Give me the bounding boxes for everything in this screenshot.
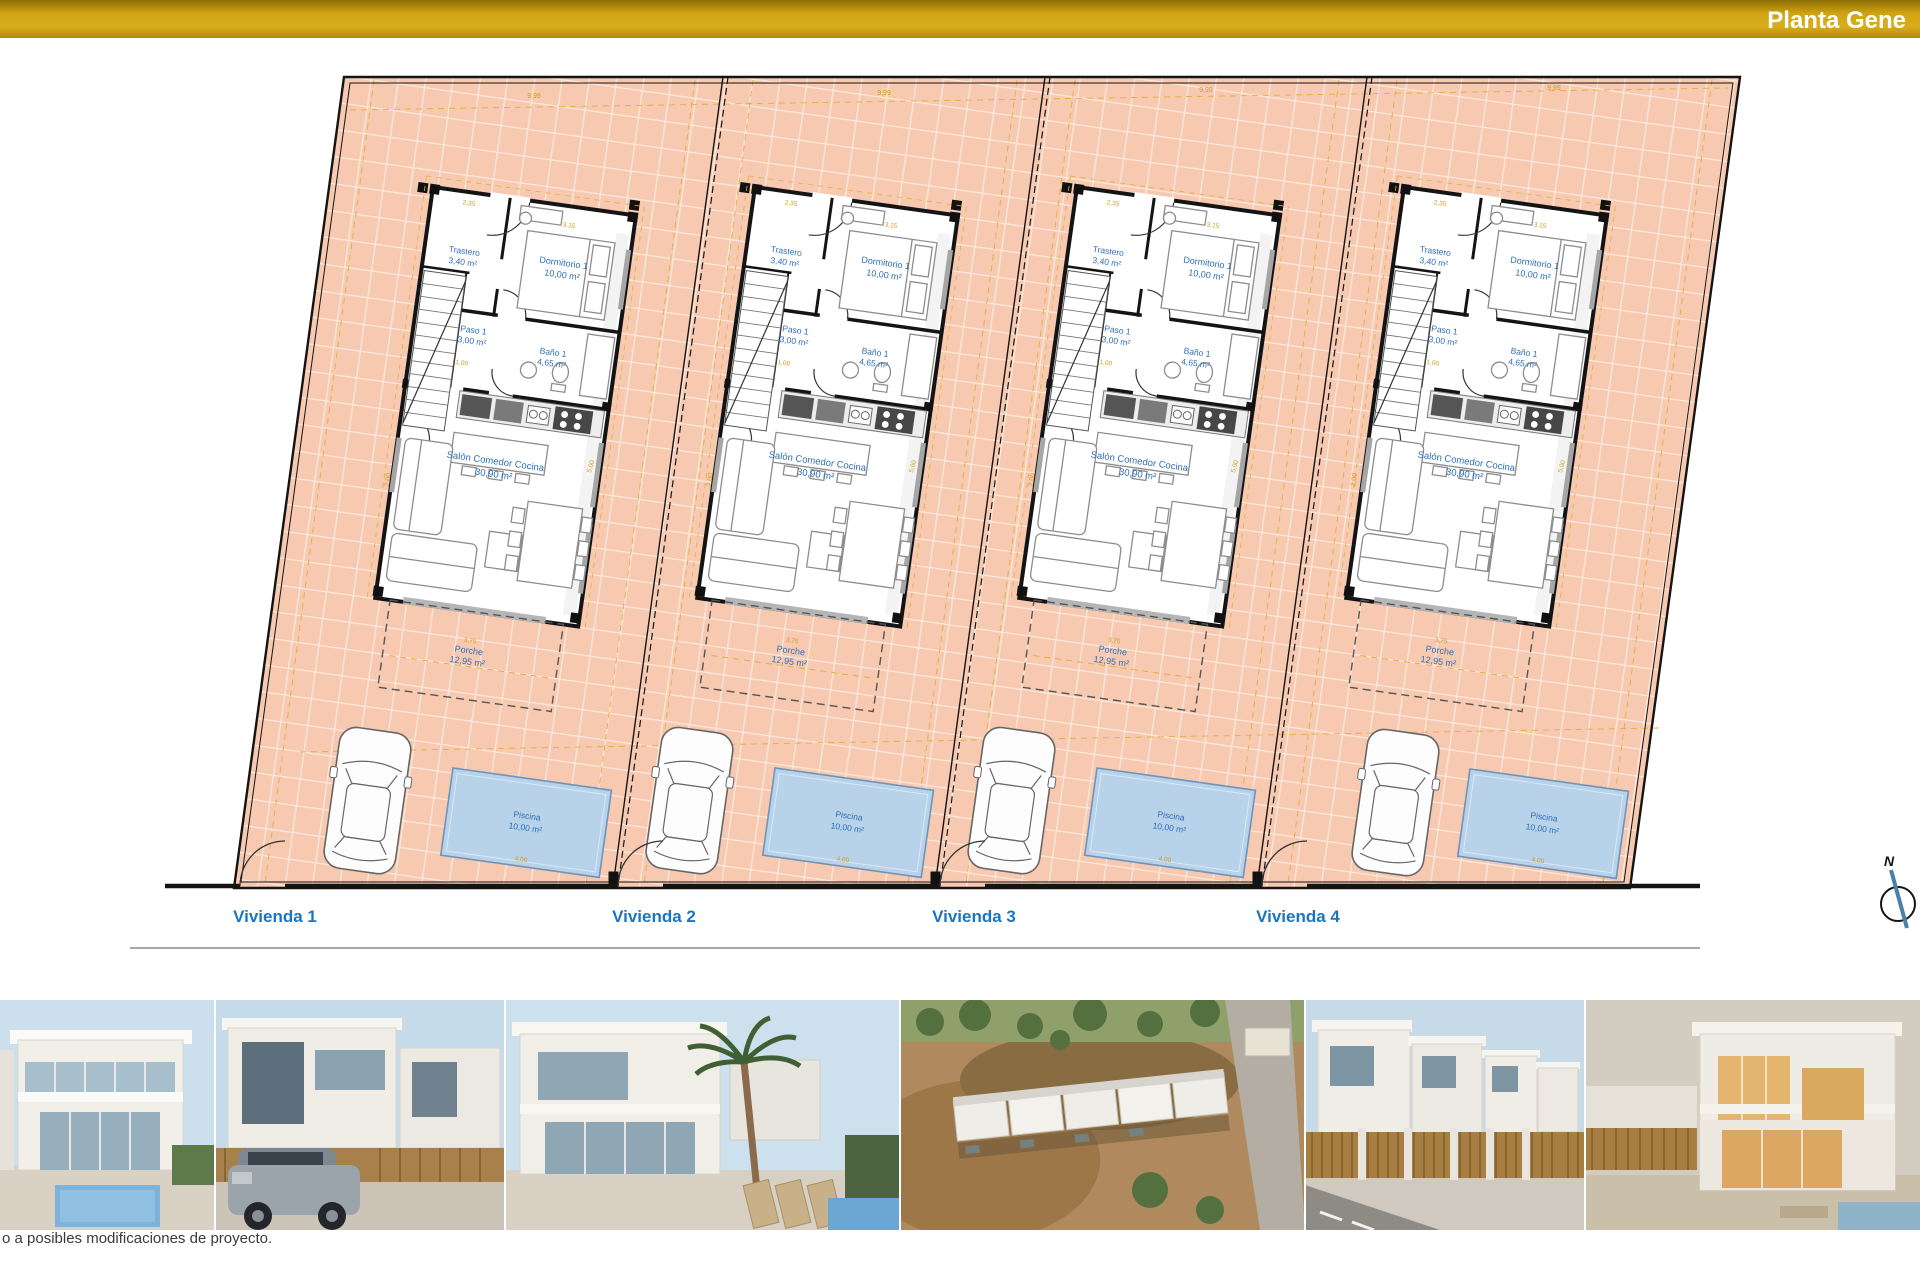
photo-villa-palm-loungers — [505, 1000, 900, 1230]
vivienda-labels: Vivienda 1 Vivienda 2 Vivienda 3 Viviend… — [233, 907, 1340, 926]
dim-top-2: 9,99 — [877, 90, 891, 97]
header-bar — [0, 0, 1920, 38]
compass-icon: N — [1881, 853, 1915, 928]
sun-loungers — [743, 1180, 843, 1229]
photo-villa-with-car — [215, 1000, 505, 1230]
photo-villa-front-pool — [0, 1000, 215, 1230]
dim-top-4: 9,99 — [1547, 85, 1561, 92]
dim-top-1: 9,99 — [527, 93, 541, 100]
photo-strip — [0, 997, 1920, 1240]
dim-top-3: 9,99 — [1199, 87, 1213, 94]
page-title: Planta Gene — [1767, 7, 1906, 34]
compass-north-label: N — [1884, 853, 1895, 869]
photo-dusk-villa — [1585, 1000, 1920, 1230]
vivienda-3-label: Vivienda 3 — [932, 907, 1016, 926]
photo-aerial-view — [860, 997, 1305, 1240]
vivienda-2-label: Vivienda 2 — [612, 907, 696, 926]
plan-sheet: Trastero 3,40 m² Dormitorio 1 10,00 m² P… — [0, 0, 1920, 1280]
disclaimer-text: o a posibles modificaciones de proyecto. — [2, 1230, 272, 1247]
photo-street-townhouses — [1305, 1000, 1585, 1230]
site-plan-drawing: Trastero 3,40 m² Dormitorio 1 10,00 m² P… — [0, 0, 1920, 1280]
vivienda-4-label: Vivienda 4 — [1256, 907, 1340, 926]
vivienda-1-label: Vivienda 1 — [233, 907, 317, 926]
